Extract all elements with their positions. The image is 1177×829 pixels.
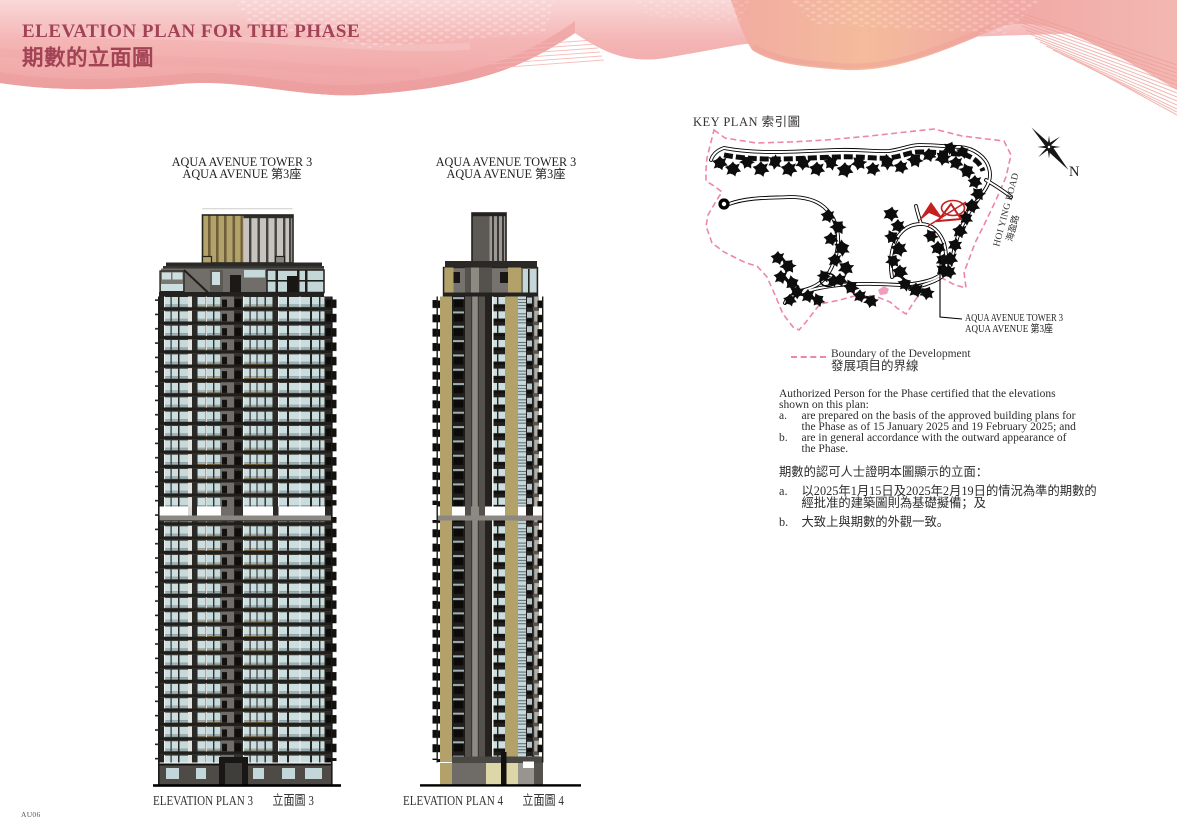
svg-text:AQUA AVENUE 第3座: AQUA AVENUE 第3座 — [965, 322, 1053, 335]
svg-text:N: N — [1069, 164, 1080, 180]
svg-text:AQUA AVENUE TOWER 3: AQUA AVENUE TOWER 3 — [965, 313, 1063, 324]
